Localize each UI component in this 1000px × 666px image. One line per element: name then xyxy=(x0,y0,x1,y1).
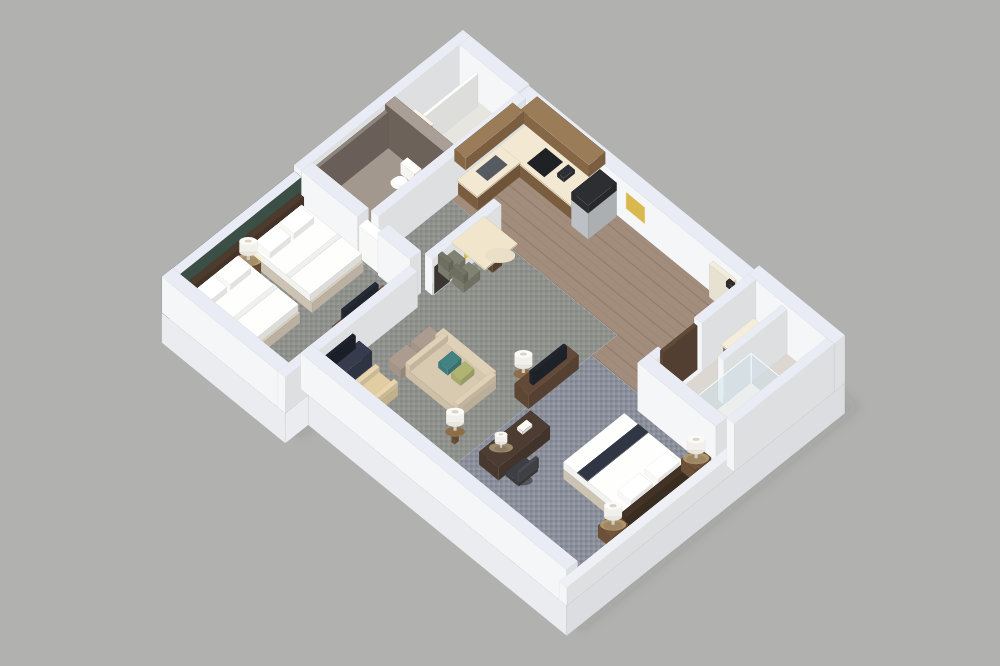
living-lamp-a xyxy=(445,408,465,437)
desk-lamp xyxy=(494,432,508,452)
floorplan-svg xyxy=(0,0,1000,666)
bedroom2-lamp-a xyxy=(686,435,706,464)
dining-table-round-end xyxy=(485,248,515,263)
bedroom2-lamp-b xyxy=(603,502,623,531)
floorplan-stage: 3D isometric cutaway floor plan render o… xyxy=(0,0,1000,666)
